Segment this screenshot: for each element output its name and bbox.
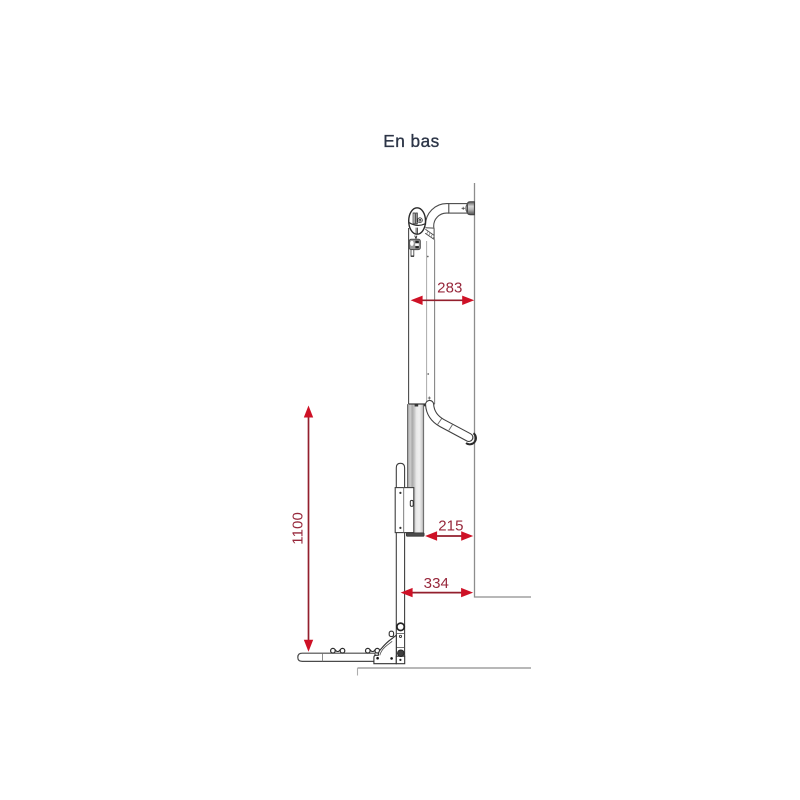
svg-text:1100: 1100 [290,512,307,545]
svg-text:215: 215 [438,517,463,534]
svg-text:En bas: En bas [383,131,440,151]
svg-text:283: 283 [437,280,462,297]
svg-text:334: 334 [424,575,449,592]
